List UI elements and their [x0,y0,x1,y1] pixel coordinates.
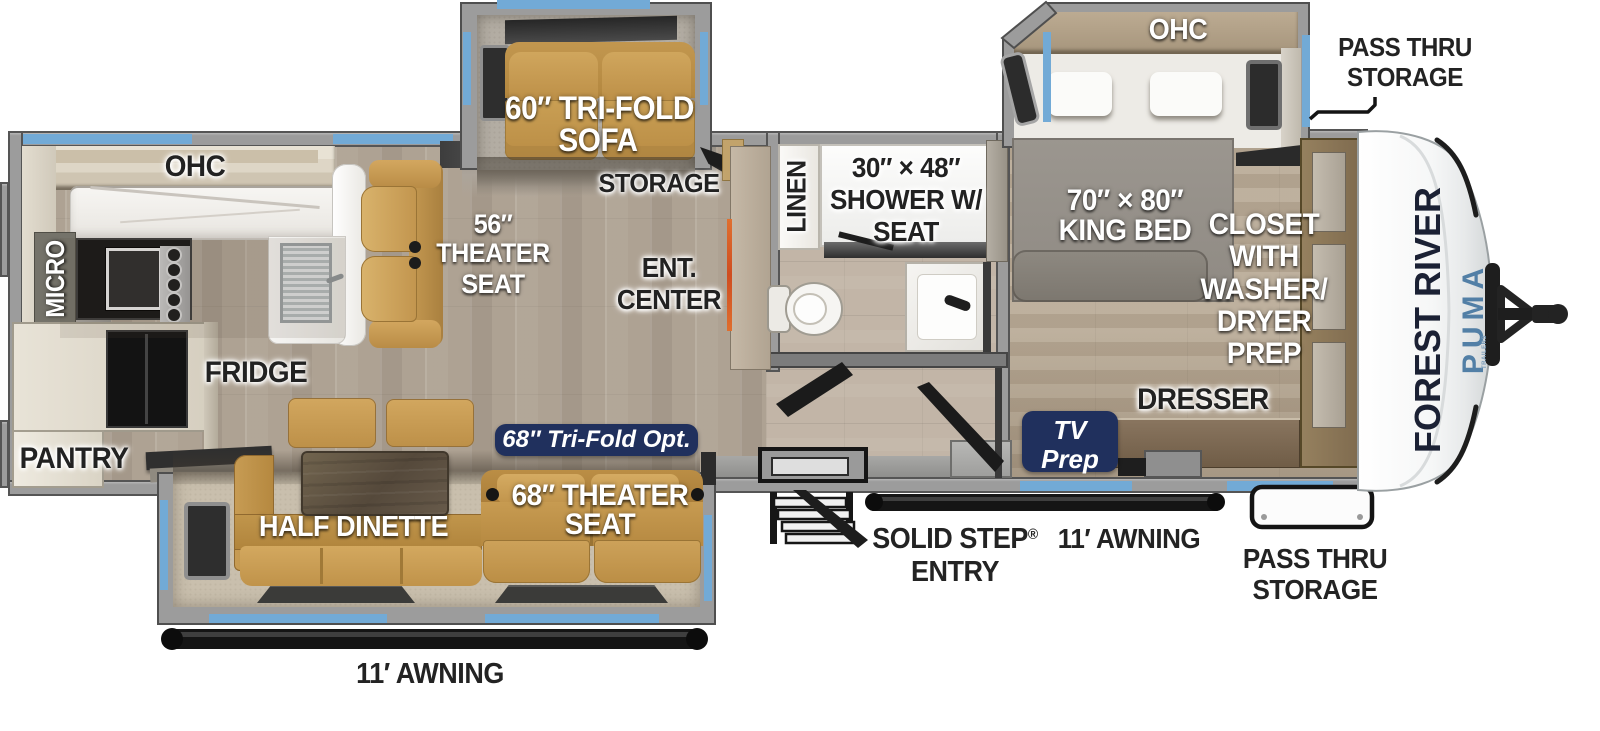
svg-text:FOREST RIVER: FOREST RIVER [1407,187,1448,453]
svg-text:TRAILERS: TRAILERS [1482,335,1488,369]
